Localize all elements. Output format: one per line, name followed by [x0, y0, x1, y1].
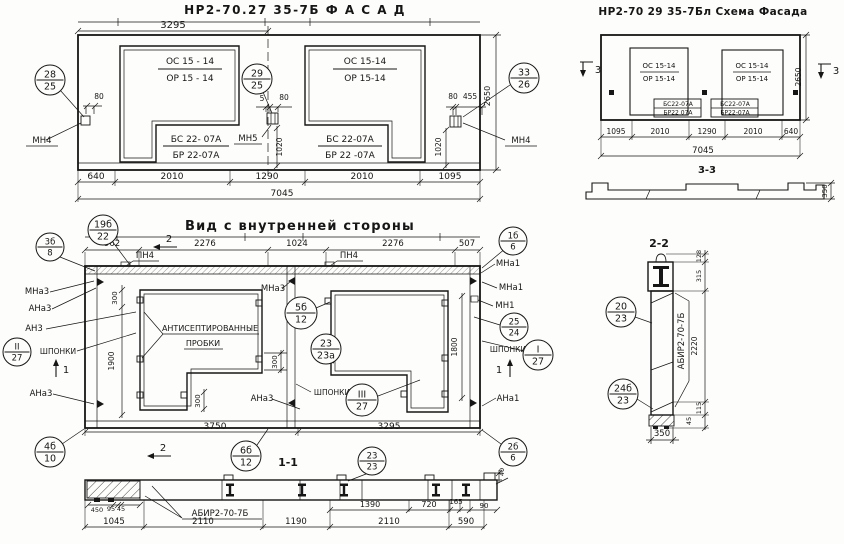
anchor-label-mn4: МН4 [32, 136, 51, 146]
dim-640: 640 [87, 172, 104, 182]
callout-2b-6-top: 2б [508, 443, 519, 453]
section-marker-1: 1 [63, 365, 69, 376]
callout-3b-8-bottom: 8 [47, 249, 52, 259]
callout-28-25: 2825 [35, 65, 65, 95]
dim-80: 80 [94, 92, 104, 101]
section-marker-2: 2 [166, 234, 172, 245]
anchor-plate [267, 113, 278, 124]
anchor-label-mna1: МНа1 [499, 283, 523, 293]
callout-33-26-top: 33 [518, 68, 530, 79]
window-mark-or: ОР 15-14 [643, 75, 676, 83]
callout-2b-6-bottom: 6 [510, 454, 515, 464]
foot-hatched [649, 415, 674, 426]
dim-7045: 7045 [271, 189, 294, 199]
dim-2650: 2650 [483, 86, 492, 106]
section-marker-3: 3 [595, 65, 601, 76]
dim-315: 315 [695, 270, 703, 282]
callout-24b-23-bottom: 23 [617, 396, 629, 407]
window-mark-os: ОС 15-14 [736, 62, 770, 70]
callout-II-27-top: II [14, 343, 19, 353]
sill-mark-bs: БС 22- 07А [171, 135, 222, 145]
dim-2110: 2110 [192, 517, 214, 527]
anchor-plate [793, 90, 798, 95]
callout-20-23-bottom: 23 [615, 314, 627, 325]
dim-1020: 1020 [275, 137, 284, 156]
keys-label: ШПОНКИ [40, 347, 76, 356]
callout-2b-6: 2б6 [499, 438, 527, 466]
callout-19b-22: 19б22 [88, 215, 118, 245]
dim-1390: 1390 [360, 500, 380, 509]
dim-90: 90 [480, 502, 489, 510]
section-2-2-title: 2-2 [649, 237, 669, 250]
callout-1b-6-top: 1б [508, 232, 519, 242]
dim-2276: 2276 [194, 239, 216, 249]
dim-2650: 2650 [794, 67, 803, 86]
end-block-hatched [87, 481, 140, 498]
callout-I-27: I27 [523, 340, 553, 370]
dim-7045: 7045 [692, 146, 714, 156]
sill-mark-bs: БС 22-07А [326, 135, 374, 145]
dim-300: 300 [194, 394, 202, 407]
dim-2010: 2010 [161, 172, 184, 182]
section-3-3-profile [586, 183, 824, 199]
scheme-title: НР2-70 29 35-7Бл Схема Фасада [598, 6, 807, 18]
dim-80: 80 [448, 92, 458, 101]
note-antiseptic-plugs-line2: ПРОБКИ [186, 339, 220, 348]
anchor-label-mna1: МНа1 [496, 259, 520, 269]
section-marker-3: 3 [833, 66, 839, 77]
anchor-plate [450, 116, 461, 127]
callout-29-25: 2925 [242, 64, 272, 94]
dim-455: 455 [463, 92, 478, 101]
end-tab [484, 473, 495, 480]
callout-6b-12-top: 6б [240, 446, 252, 457]
anchor-label-mna3: МНа3 [25, 287, 49, 297]
dim-590: 590 [458, 517, 474, 527]
callout-5b-12-top: 5б [295, 303, 307, 314]
callout-23-23-bottom: 23 [367, 463, 378, 473]
anchor-label-ana3: АНа3 [251, 394, 274, 404]
anchor-mn1-plate [471, 296, 478, 302]
callout-23-23a-bottom: 23а [317, 351, 335, 362]
dim-1095: 1095 [606, 127, 625, 136]
sill-mark-br: БР22-07А [720, 110, 750, 117]
window-mark-or: ОР 15 - 14 [166, 74, 214, 84]
panel-drawing-svg: НР2-70.27 35-7Б Ф А С А Д [0, 0, 844, 544]
dim-45: 45 [117, 505, 125, 513]
window-mark-os: ОС 15 - 14 [166, 57, 214, 67]
callout-III-27-top: III [358, 390, 366, 401]
callout-23-23a: 2323а [311, 334, 341, 364]
scheme-view: НР2-70 29 35-7Бл Схема Фасада 3-3 [580, 6, 835, 202]
anchor-label-mna3: МНа3 [261, 284, 285, 294]
ibeam-anchors [226, 484, 470, 497]
callout-23-23-top: 23 [367, 452, 378, 462]
callout-28-25-bottom: 25 [44, 82, 56, 93]
callout-3b-8-top: 3б [45, 238, 56, 248]
callout-III-27: III27 [346, 384, 378, 416]
sill-mark-bs: БС22-07А [720, 101, 751, 108]
callout-3b-8: 3б8 [36, 233, 64, 261]
dim-165: 165 [449, 498, 462, 506]
dim-300: 300 [271, 355, 279, 368]
dim-2010: 2010 [743, 127, 762, 136]
callout-I-27-bottom: 27 [532, 357, 544, 368]
callout-33-26: 3326 [509, 63, 539, 93]
panel-mark-abir: АБИР2-70-7Б [677, 312, 687, 369]
callout-1b-6: 1б6 [499, 227, 527, 255]
dim-45: 45 [685, 417, 693, 425]
dim-1095: 1095 [439, 172, 462, 182]
sill-mark-br: БР22 07А [663, 110, 693, 117]
dim-1045: 1045 [103, 517, 125, 527]
sill-mark-br: БР 22 -07А [325, 151, 375, 161]
dim-2010: 2010 [650, 127, 669, 136]
dim-1800: 1800 [450, 337, 459, 356]
callout-20-23: 2023 [606, 297, 636, 327]
callout-25-24-bottom: 24 [509, 329, 520, 339]
dim-3295: 3295 [160, 20, 185, 31]
anchor-plate [81, 116, 90, 125]
facade-title: НР2-70.27 35-7Б Ф А С А Д [184, 3, 406, 17]
callout-4b-10-bottom: 10 [44, 454, 56, 465]
dim-1290: 1290 [697, 127, 716, 136]
callout-II-27-bottom: 27 [12, 354, 23, 364]
callout-III-27-bottom: 27 [356, 402, 368, 413]
dim-507: 507 [459, 239, 475, 249]
sill-mark-br: БР 22-07А [173, 151, 221, 161]
anchor-plate [609, 90, 614, 95]
anchor-label-mn4: МН4 [511, 136, 530, 146]
dim-1024: 1024 [286, 239, 308, 249]
dim-128: 128 [695, 250, 703, 262]
callout-23-23a-top: 23 [320, 339, 332, 350]
anchor-label-ana1: АНа1 [497, 394, 520, 404]
dim-1190: 1190 [285, 517, 307, 527]
callout-1b-6-bottom: 6 [510, 243, 515, 253]
callout-6b-12-bottom: 12 [240, 458, 252, 469]
anchor-label-ana3: АНа3 [29, 304, 52, 314]
dim-1020: 1020 [434, 137, 443, 156]
callout-II-27: II27 [3, 338, 31, 366]
anchor-label-mn1: МН1 [495, 301, 514, 311]
keys-label: ШПОНКИ [314, 388, 350, 397]
dim-450: 450 [91, 506, 103, 514]
callout-29-25-bottom: 25 [251, 81, 263, 92]
panel-top-band-hatch [85, 266, 480, 274]
section-1-1-title: 1-1 [278, 456, 298, 469]
dim-5: 5 [260, 94, 265, 103]
drawing-sheet: НР2-70.27 35-7Б Ф А С А Д [0, 0, 844, 544]
callout-19b-22-bottom: 22 [97, 232, 109, 243]
lifting-loop [656, 254, 666, 262]
dim-350: 350 [821, 184, 829, 197]
section-3-3-title: 3-3 [698, 165, 716, 176]
callout-19b-22-top: 19б [94, 220, 112, 231]
anchor-plate [702, 90, 707, 95]
dim-2220: 2220 [690, 336, 699, 355]
plate-label-pn4: ПН4 [136, 251, 154, 261]
callout-29-25-top: 29 [251, 69, 263, 80]
panel-body-section [651, 291, 673, 415]
callout-5b-12-bottom: 12 [295, 315, 307, 326]
section-marker-2: 2 [160, 443, 166, 454]
note-antiseptic-plugs-line1: АНТИСЕПТИРОВАННЫЕ [162, 324, 258, 333]
dim-115: 115 [695, 402, 703, 414]
inner-view-title: Вид с внутренней стороны [185, 219, 415, 234]
anchor-label-mn5: МН5 [238, 134, 257, 144]
section-marker-1: 1 [496, 365, 502, 376]
dim-95: 95 [107, 505, 115, 513]
dim-2276: 2276 [382, 239, 404, 249]
callout-25-24-top: 25 [509, 318, 520, 328]
anchor-label-ana3: АНа3 [30, 389, 53, 399]
window-mark-or: ОР 15-14 [344, 74, 386, 84]
anchor-label-an3: АН3 [25, 324, 43, 334]
dim-2110: 2110 [378, 517, 400, 527]
callout-28-25-top: 28 [44, 70, 56, 81]
callout-25-24: 2524 [500, 313, 528, 341]
sill-mark-bs: БС22-07А [663, 101, 694, 108]
callout-24b-23: 24б23 [608, 379, 638, 409]
window-mark-os: ОС 15-14 [344, 57, 387, 67]
dim-2010: 2010 [351, 172, 374, 182]
dim-300: 300 [111, 291, 119, 304]
dim-40: 40 [498, 468, 506, 476]
dim-3750: 3750 [204, 422, 227, 432]
dim-1900: 1900 [107, 351, 116, 370]
callout-6b-12: 6б12 [231, 441, 261, 471]
dim-80: 80 [279, 93, 289, 102]
dim-1290: 1290 [256, 172, 279, 182]
window-mark-os: ОС 15-14 [643, 62, 677, 70]
dim-350: 350 [654, 429, 670, 439]
plate-label-pn4: ПН4 [340, 251, 358, 261]
callout-5b-12: 5б12 [285, 297, 317, 329]
callout-24b-23-top: 24б [614, 384, 632, 395]
callout-20-23-top: 20 [615, 302, 627, 313]
dim-3295: 3295 [378, 422, 401, 432]
keys-label: ШПОНКИ [490, 345, 526, 354]
callout-4b-10: 4б10 [35, 437, 65, 467]
dim-640: 640 [784, 127, 799, 136]
callout-4b-10-top: 4б [44, 442, 56, 453]
callout-33-26-bottom: 26 [518, 80, 530, 91]
inner-window-left [140, 290, 262, 410]
callout-23-23: 2323 [358, 447, 386, 475]
window-mark-or: ОР 15-14 [736, 75, 769, 83]
dim-720: 720 [421, 500, 436, 509]
callout-I-27-top: I [537, 345, 540, 356]
